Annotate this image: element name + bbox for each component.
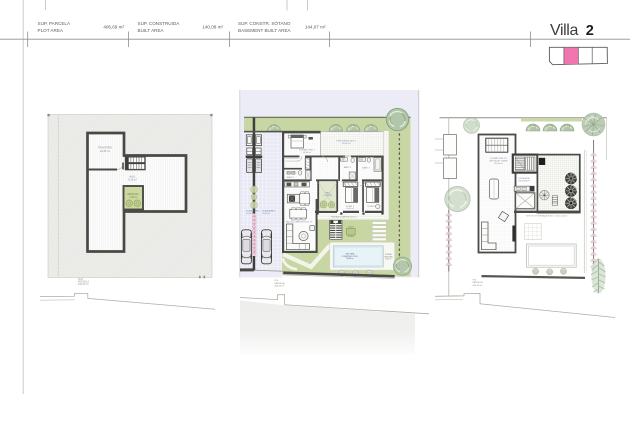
svg-text:24,45 m²: 24,45 m²	[100, 149, 110, 153]
svg-text:8,40 m²: 8,40 m²	[385, 258, 392, 261]
svg-text:7,30 m²: 7,30 m²	[129, 196, 137, 199]
svg-text:PORCHE ACCESO: PORCHE ACCESO	[336, 140, 355, 143]
svg-text:TERRAZA CUBIERTA 14,60 m²: TERRAZA CUBIERTA 14,60 m²	[331, 216, 358, 219]
svg-text:DORM. 3: DORM. 3	[367, 206, 376, 208]
svg-text:20,30 m²: 20,30 m²	[494, 162, 503, 165]
svg-text:406,69 m²: 406,69 m²	[78, 283, 89, 286]
svg-text:12,60 m²: 12,60 m²	[246, 212, 254, 215]
svg-text:10,05 m²: 10,05 m²	[346, 207, 354, 210]
svg-text:144,07 m²: 144,07 m²	[305, 25, 326, 30]
svg-text:9,15 m²: 9,15 m²	[128, 179, 137, 182]
svg-text:SUP. UTIL P1 TERRAZA 39,80 m²: SUP. UTIL P1 TERRAZA 39,80 m² CUB. 12,30…	[526, 215, 568, 218]
svg-text:SUP. CONSTRUIDA: SUP. CONSTRUIDA	[138, 21, 181, 26]
svg-text:Villa: Villa	[550, 22, 578, 39]
svg-text:BAÑO 1: BAÑO 1	[287, 176, 295, 179]
svg-text:PARCELA: PARCELA	[473, 281, 484, 284]
svg-text:BAÑO 3: BAÑO 3	[362, 167, 370, 170]
svg-text:SALON-COMEDOR 28,70 m²: SALON-COMEDOR 28,70 m²	[286, 221, 313, 224]
svg-text:INSTALAC.: INSTALAC.	[127, 193, 139, 196]
svg-text:12,95 m²: 12,95 m²	[342, 142, 351, 145]
svg-text:BAÑO 2: BAÑO 2	[344, 166, 352, 169]
svg-text:DISTRIB.: DISTRIB.	[324, 195, 333, 197]
svg-text:BASEMENT BUILT AREA: BASEMENT BUILT AREA	[238, 28, 292, 33]
svg-text:28,00 m²: 28,00 m²	[346, 257, 354, 260]
svg-text:12,60 m²: 12,60 m²	[262, 212, 270, 215]
svg-text:SUP. CONSTR. SÓTANO: SUP. CONSTR. SÓTANO	[238, 20, 291, 26]
svg-text:140,08 m²: 140,08 m²	[202, 25, 223, 30]
svg-text:2: 2	[586, 23, 594, 39]
svg-text:BUILT AREA: BUILT AREA	[138, 28, 165, 33]
svg-text:SUP. PARCELA: SUP. PARCELA	[38, 21, 71, 26]
svg-text:PARCELA: PARCELA	[275, 282, 286, 285]
svg-text:ASCENSOR: ASCENSOR	[518, 179, 530, 182]
svg-text:406,69 m²: 406,69 m²	[275, 284, 285, 287]
svg-text:14,65 m²: 14,65 m²	[303, 151, 312, 154]
svg-text:PLOT AREA: PLOT AREA	[38, 28, 64, 33]
svg-text:406,69 m²: 406,69 m²	[103, 25, 124, 30]
svg-text:406,69 m²: 406,69 m²	[473, 284, 483, 287]
